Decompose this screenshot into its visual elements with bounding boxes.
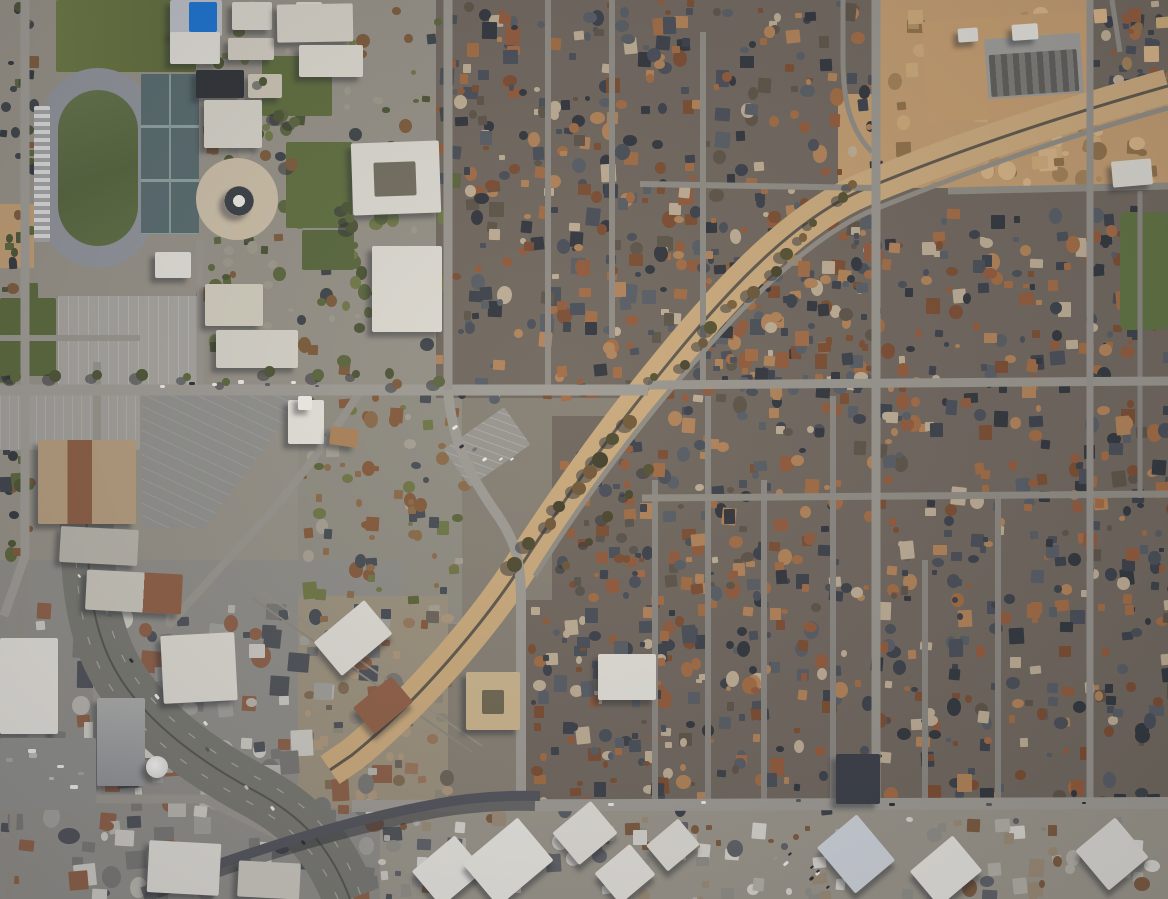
plant-tanks bbox=[70, 785, 78, 789]
residential-blocks-wedge bbox=[599, 569, 608, 578]
trees-park bbox=[341, 202, 352, 213]
residential-blocks-ne bbox=[497, 37, 502, 42]
commercial-s-lots bbox=[805, 826, 810, 831]
residential-blocks-mid bbox=[935, 330, 944, 338]
residential-blocks-mid bbox=[1012, 269, 1022, 277]
residential-blocks-ne bbox=[489, 202, 503, 217]
residential-blocks-ne bbox=[556, 129, 562, 135]
trees-canal-row-lower bbox=[572, 482, 585, 495]
residential-blocks-ne bbox=[501, 256, 511, 266]
dirt-mottle-ne bbox=[905, 62, 918, 77]
residential-blocks-e bbox=[815, 428, 824, 437]
residential-blocks-e bbox=[775, 570, 787, 585]
residential-blocks-ne bbox=[619, 297, 631, 310]
campus-trees bbox=[447, 173, 461, 189]
residential-blocks-ne bbox=[574, 244, 583, 251]
residential-blocks-e bbox=[891, 428, 898, 437]
residential-blocks-ne bbox=[847, 73, 858, 84]
residential-blocks-ne bbox=[549, 37, 561, 50]
residential-blocks-mid bbox=[768, 349, 774, 355]
residential-blocks-ne bbox=[636, 389, 644, 397]
residential-blocks-e bbox=[681, 624, 697, 643]
residential-blocks-s bbox=[640, 641, 645, 646]
residential-blocks-e bbox=[1109, 443, 1124, 456]
residential-blocks-mid bbox=[873, 308, 881, 314]
residential-blocks-e bbox=[797, 640, 808, 652]
residential-blocks-ne bbox=[805, 11, 817, 21]
residential-blocks-mid bbox=[984, 333, 998, 343]
west-edge-trees bbox=[15, 153, 22, 159]
residential-blocks-wedge bbox=[584, 520, 589, 526]
residential-blocks-mid bbox=[1019, 293, 1034, 306]
residential-blocks-mid bbox=[772, 390, 781, 401]
residential-blocks-ne bbox=[635, 272, 641, 277]
residential-blocks-e bbox=[829, 666, 841, 677]
residential-blocks-ne bbox=[757, 78, 771, 94]
tan-roofs-canal bbox=[329, 426, 359, 448]
commercial-s-lots bbox=[706, 825, 713, 830]
midwest-mixed bbox=[449, 566, 460, 575]
residential-blocks-s bbox=[580, 680, 595, 697]
residential-blocks-e bbox=[899, 540, 915, 559]
dirt-mottle-ne bbox=[1144, 46, 1159, 63]
residential-blocks-ne bbox=[675, 258, 687, 270]
residential-blocks-e bbox=[739, 480, 748, 488]
residential-blocks-ne bbox=[440, 67, 455, 85]
residential-blocks-mid bbox=[1022, 382, 1035, 397]
satellite-map-canvas[interactable] bbox=[0, 0, 1168, 899]
commercial-s-lots bbox=[633, 830, 647, 846]
residential-blocks-mid bbox=[921, 276, 932, 285]
residential-blocks-ne bbox=[856, 283, 869, 294]
rail-corridor-scrub bbox=[435, 693, 444, 702]
midwest-mixed bbox=[364, 411, 378, 428]
sw-bldg-1 bbox=[59, 526, 139, 566]
residential-blocks-ne bbox=[607, 112, 618, 125]
trees-canal-row-upper bbox=[780, 248, 792, 260]
industrial-sw-lots bbox=[249, 644, 265, 658]
west-edge-trees bbox=[18, 456, 24, 464]
residential-blocks-ne bbox=[539, 331, 553, 347]
residential-blocks-s bbox=[658, 658, 666, 667]
industrial-sw-lots bbox=[152, 720, 165, 730]
residential-blocks-e bbox=[1061, 687, 1073, 697]
residential-blocks-e bbox=[1029, 416, 1044, 427]
residential-blocks-s bbox=[542, 655, 548, 662]
residential-blocks-e bbox=[919, 642, 932, 651]
commercial-s-lots bbox=[1041, 826, 1047, 830]
residential-blocks-ne bbox=[820, 168, 829, 175]
residential-blocks-mid bbox=[896, 363, 908, 378]
residential-blocks-e bbox=[743, 606, 754, 616]
residential-blocks-mid bbox=[1059, 384, 1070, 393]
residential-blocks-ne bbox=[479, 287, 492, 300]
residential-blocks-e bbox=[698, 604, 707, 616]
rail-corridor-scrub bbox=[395, 760, 402, 768]
residential-blocks-e bbox=[643, 607, 654, 618]
residential-blocks-wedge bbox=[596, 525, 609, 537]
residential-blocks-ne bbox=[520, 220, 532, 233]
industrial-sw-lots bbox=[127, 816, 142, 829]
residential-blocks-e bbox=[980, 546, 986, 554]
residential-blocks-mid bbox=[905, 288, 913, 297]
residential-blocks-ne bbox=[799, 85, 814, 98]
residential-blocks-ne bbox=[460, 74, 469, 84]
residential-blocks-ne bbox=[841, 2, 858, 22]
residential-blocks-ne bbox=[785, 64, 795, 73]
industrial-sw-lots bbox=[278, 609, 288, 620]
commercial-s-lots bbox=[994, 818, 1010, 832]
campus-bldg-se bbox=[372, 246, 442, 332]
residential-blocks-e bbox=[1027, 604, 1040, 618]
residential-blocks-e bbox=[679, 737, 687, 746]
campus-trees bbox=[261, 246, 268, 254]
residential-blocks-e bbox=[975, 646, 984, 657]
rail-corridor-scrub bbox=[406, 720, 413, 726]
residential-blocks-e bbox=[1060, 622, 1073, 632]
commercial-s-lots bbox=[792, 834, 799, 840]
residential-blocks-mid bbox=[748, 273, 754, 281]
residential-blocks-e bbox=[761, 601, 769, 609]
residential-blocks-e bbox=[854, 441, 866, 456]
residential-blocks-ne bbox=[497, 299, 503, 306]
residential-blocks-e bbox=[751, 687, 760, 694]
residential-blocks-ne bbox=[648, 330, 655, 336]
industrial-sw-lots bbox=[332, 779, 350, 802]
commercial-s-lots bbox=[696, 857, 708, 866]
midwest-mixed bbox=[303, 527, 313, 538]
lawn-park-c bbox=[0, 298, 56, 376]
residential-blocks-e bbox=[974, 409, 986, 422]
residential-blocks-ne bbox=[662, 17, 676, 35]
commercial-s-lots bbox=[1004, 833, 1015, 844]
trees-main-street bbox=[222, 378, 230, 386]
midwest-mixed bbox=[355, 471, 361, 477]
residential-blocks-e bbox=[674, 560, 686, 570]
trees-canal-row-lower bbox=[545, 518, 557, 530]
residential-blocks-e bbox=[1061, 584, 1073, 595]
residential-blocks-wedge bbox=[640, 504, 648, 512]
residential-blocks-mid bbox=[970, 378, 976, 385]
residential-blocks-ne bbox=[673, 251, 684, 259]
residential-blocks-e bbox=[930, 423, 943, 437]
residential-blocks-ne bbox=[475, 266, 481, 272]
residential-blocks-e bbox=[1085, 682, 1095, 693]
dirt-mottle-ne bbox=[996, 130, 1009, 146]
residential-blocks-s bbox=[570, 787, 582, 796]
residential-blocks-mid bbox=[1127, 339, 1133, 345]
dirt-mottle-ne bbox=[1054, 158, 1065, 167]
residential-blocks-wedge bbox=[639, 558, 644, 562]
residential-blocks-mid bbox=[955, 344, 960, 348]
residential-blocks-e bbox=[1138, 742, 1144, 747]
residential-blocks-ne bbox=[704, 140, 710, 147]
residential-blocks-ne bbox=[840, 393, 849, 404]
residential-blocks-e bbox=[663, 511, 677, 523]
residential-blocks-e bbox=[1102, 648, 1109, 656]
residential-blocks-s bbox=[540, 753, 547, 761]
residential-blocks-e bbox=[691, 534, 707, 547]
residential-blocks-ne bbox=[604, 183, 619, 198]
residential-blocks-e bbox=[882, 454, 896, 468]
school-bldg-n1 bbox=[232, 2, 272, 30]
residential-blocks-ne bbox=[657, 236, 669, 247]
residential-blocks-ne bbox=[607, 3, 614, 8]
residential-blocks-ne bbox=[761, 188, 768, 194]
residential-blocks-ne bbox=[489, 229, 500, 240]
commercial-s-lots bbox=[954, 820, 962, 827]
residential-blocks-e bbox=[1030, 530, 1039, 539]
commercial-s-lots bbox=[987, 862, 1001, 876]
campus-trees bbox=[350, 276, 361, 290]
residential-blocks-e bbox=[1048, 606, 1057, 617]
residential-blocks-ne bbox=[499, 155, 505, 160]
residential-blocks-ne bbox=[626, 316, 638, 325]
residential-blocks-mid bbox=[999, 383, 1007, 393]
rail-corridor-scrub bbox=[429, 673, 434, 677]
campus-trees bbox=[439, 106, 452, 121]
west-edge-trees bbox=[2, 287, 8, 292]
residential-blocks-e bbox=[1053, 584, 1062, 592]
school-bldg-gym bbox=[170, 32, 220, 64]
rail-corridor-scrub bbox=[439, 769, 454, 786]
residential-blocks-ne bbox=[457, 328, 463, 333]
residential-blocks-e bbox=[927, 500, 935, 508]
residential-blocks-e bbox=[891, 593, 897, 599]
brick-building bbox=[38, 440, 136, 524]
trees-canal-row-upper bbox=[848, 180, 857, 189]
residential-blocks-e bbox=[1106, 524, 1112, 531]
campus-trees bbox=[317, 298, 327, 306]
residential-blocks-s bbox=[564, 619, 579, 635]
residential-blocks-e bbox=[1108, 716, 1119, 725]
rail-corridor-scrub bbox=[436, 713, 448, 722]
residential-blocks-ne bbox=[645, 265, 655, 274]
residential-blocks-mid bbox=[1155, 377, 1161, 384]
residential-blocks-e bbox=[1084, 445, 1095, 459]
campus-trees bbox=[263, 321, 273, 329]
residential-blocks-mid bbox=[694, 247, 705, 256]
dirt-mottle-ne bbox=[974, 128, 988, 144]
industrial-sw-lots bbox=[91, 889, 107, 899]
dark-bigbox bbox=[836, 754, 880, 804]
track-infield bbox=[58, 90, 138, 246]
residential-blocks-ne bbox=[475, 378, 489, 389]
commercial-s-lots bbox=[492, 812, 506, 826]
residential-blocks-ne bbox=[791, 85, 798, 92]
residential-blocks-e bbox=[823, 690, 833, 701]
residential-blocks-e bbox=[1105, 684, 1113, 693]
residential-blocks-e bbox=[658, 450, 668, 459]
residential-blocks-ne bbox=[577, 379, 583, 385]
residential-blocks-ne bbox=[629, 254, 643, 265]
industrial-sw-lots bbox=[18, 839, 35, 852]
residential-blocks-ne bbox=[485, 180, 500, 191]
trees-park bbox=[289, 117, 300, 128]
residential-blocks-mid bbox=[817, 304, 829, 317]
industrial-sw-lots bbox=[70, 607, 85, 619]
residential-blocks-ne bbox=[786, 29, 802, 43]
residential-blocks-mid bbox=[1036, 300, 1042, 306]
commercial-s-lots bbox=[422, 822, 431, 832]
residential-blocks-wedge bbox=[566, 529, 575, 538]
residential-blocks-e bbox=[1009, 461, 1018, 470]
west-edge-trees bbox=[11, 127, 21, 138]
rail-corridor-scrub bbox=[403, 618, 415, 628]
midwest-mixed bbox=[428, 517, 438, 528]
campus-trees bbox=[214, 236, 221, 244]
residential-blocks-mid bbox=[1065, 235, 1080, 253]
residential-blocks-e bbox=[746, 561, 755, 568]
residential-blocks-ne bbox=[533, 147, 545, 161]
residential-blocks-ne bbox=[814, 374, 823, 384]
cars-main-street bbox=[238, 380, 244, 383]
residential-blocks-ne bbox=[544, 188, 554, 196]
residential-blocks-e bbox=[908, 650, 916, 660]
residential-blocks-e bbox=[1122, 593, 1132, 604]
midwest-mixed bbox=[422, 420, 433, 430]
commercial-s-lots bbox=[715, 840, 721, 846]
industrial-sw-lots bbox=[269, 676, 289, 697]
commercial-s-lots bbox=[751, 822, 766, 839]
dirt-mottle-ne bbox=[1051, 133, 1063, 146]
residential-blocks-s bbox=[651, 783, 665, 796]
midwest-mixed bbox=[356, 498, 363, 506]
residential-blocks-ne bbox=[563, 322, 571, 332]
residential-blocks-necorner bbox=[1111, 50, 1116, 56]
midwest-mixed bbox=[302, 549, 314, 562]
residential-blocks-ne bbox=[538, 106, 547, 118]
dirt-mottle-ne bbox=[997, 160, 1016, 180]
campus-trees bbox=[263, 280, 273, 288]
campus-trees bbox=[419, 337, 433, 351]
industrial-sw-lots bbox=[314, 682, 333, 700]
campus-trees bbox=[326, 295, 337, 308]
residential-blocks-mid bbox=[1049, 208, 1062, 224]
industrial-sw-lots bbox=[227, 605, 234, 613]
residential-blocks-necorner bbox=[1093, 60, 1100, 67]
plant-tanks bbox=[6, 758, 13, 762]
residential-blocks-e bbox=[1045, 539, 1052, 548]
residential-blocks-ne bbox=[679, 185, 691, 199]
residential-blocks-ne bbox=[574, 30, 585, 40]
residential-blocks-ne bbox=[677, 344, 686, 355]
residential-blocks-ne bbox=[613, 240, 621, 250]
residential-blocks-mid bbox=[808, 323, 815, 329]
residential-blocks-ne bbox=[819, 36, 829, 49]
industrial-sw-lots bbox=[321, 827, 343, 850]
dirt-mottle-ne bbox=[896, 142, 912, 157]
residential-blocks-e bbox=[887, 566, 897, 575]
residential-blocks-e bbox=[821, 526, 830, 532]
rail-corridor-scrub bbox=[359, 758, 370, 768]
residential-blocks-ne bbox=[557, 366, 568, 378]
industrial-sw-lots bbox=[338, 804, 350, 813]
campus-bldg-s2 bbox=[216, 330, 298, 368]
residential-blocks-ne bbox=[828, 217, 839, 231]
residential-blocks-mid bbox=[940, 250, 949, 259]
residential-blocks-mid bbox=[978, 283, 990, 293]
residential-blocks-mid bbox=[703, 221, 718, 233]
residential-blocks-e bbox=[753, 734, 761, 742]
residential-blocks-e bbox=[1081, 590, 1090, 596]
residential-blocks-e bbox=[700, 511, 708, 521]
industrial-sw-lots bbox=[77, 661, 99, 689]
industrial-sw-lots bbox=[279, 750, 300, 774]
midwest-mixed bbox=[302, 582, 317, 600]
residential-blocks-e bbox=[1028, 429, 1042, 440]
residential-blocks-e bbox=[978, 424, 992, 439]
residential-blocks-e bbox=[944, 530, 952, 538]
residential-blocks-e bbox=[1158, 422, 1168, 438]
commercial-s-lots bbox=[902, 888, 914, 899]
residential-blocks-e bbox=[794, 728, 801, 733]
midwest-mixed bbox=[347, 398, 356, 406]
residential-blocks-e bbox=[947, 698, 961, 716]
residential-blocks-wedge bbox=[631, 571, 637, 576]
residential-blocks-e bbox=[983, 537, 988, 542]
commercial-s-lots bbox=[966, 819, 979, 832]
industrial-sw-lots bbox=[300, 636, 310, 646]
residential-blocks-e bbox=[695, 635, 707, 650]
residential-blocks-ne bbox=[560, 151, 567, 157]
campus-trees bbox=[230, 270, 236, 277]
residential-blocks-ne bbox=[700, 306, 707, 313]
residential-blocks-e bbox=[1144, 713, 1157, 729]
cars-canal-lot bbox=[510, 457, 515, 461]
residential-blocks-e bbox=[1024, 504, 1033, 511]
residential-blocks-e bbox=[1153, 697, 1163, 707]
residential-blocks-e bbox=[1147, 794, 1161, 807]
residential-blocks-e bbox=[878, 642, 888, 654]
residential-blocks-e bbox=[1036, 708, 1046, 720]
industrial-sw-lots bbox=[358, 837, 374, 855]
residential-blocks-e bbox=[770, 608, 781, 620]
residential-blocks-ne bbox=[557, 301, 568, 310]
residential-blocks-ne bbox=[842, 356, 851, 365]
residential-blocks-e bbox=[1079, 469, 1093, 485]
commercial-s-lots bbox=[1048, 825, 1057, 837]
residential-blocks-s bbox=[603, 761, 609, 768]
residential-blocks-ne bbox=[807, 138, 818, 151]
residential-blocks-ne bbox=[599, 98, 611, 107]
residential-blocks-e bbox=[980, 469, 990, 478]
residential-blocks-mid bbox=[889, 243, 901, 254]
residential-blocks-wedge bbox=[596, 552, 609, 564]
trees-main-street bbox=[10, 371, 21, 382]
residential-blocks-e bbox=[665, 741, 672, 747]
commercial-s-lots bbox=[812, 856, 826, 868]
residential-blocks-ne bbox=[712, 150, 725, 164]
industrial-sw-lots bbox=[241, 738, 253, 749]
houses-row-w bbox=[155, 252, 191, 278]
residential-blocks-mid bbox=[854, 233, 860, 240]
residential-blocks-mid bbox=[1095, 263, 1105, 274]
residential-blocks-e bbox=[983, 737, 991, 744]
residential-blocks-e bbox=[1055, 557, 1066, 567]
residential-blocks-mid bbox=[713, 366, 719, 371]
residential-blocks-ne bbox=[691, 100, 702, 109]
residential-blocks-e bbox=[1106, 696, 1116, 706]
residential-blocks-e bbox=[774, 519, 789, 532]
residential-blocks-ne bbox=[745, 349, 758, 361]
midwest-mixed bbox=[315, 494, 322, 502]
west-edge-trees bbox=[23, 124, 34, 134]
residential-blocks-e bbox=[1155, 482, 1168, 499]
west-edge-trees bbox=[19, 79, 26, 87]
residential-blocks-mid bbox=[1047, 280, 1057, 292]
commercial-s-lots bbox=[768, 839, 774, 844]
